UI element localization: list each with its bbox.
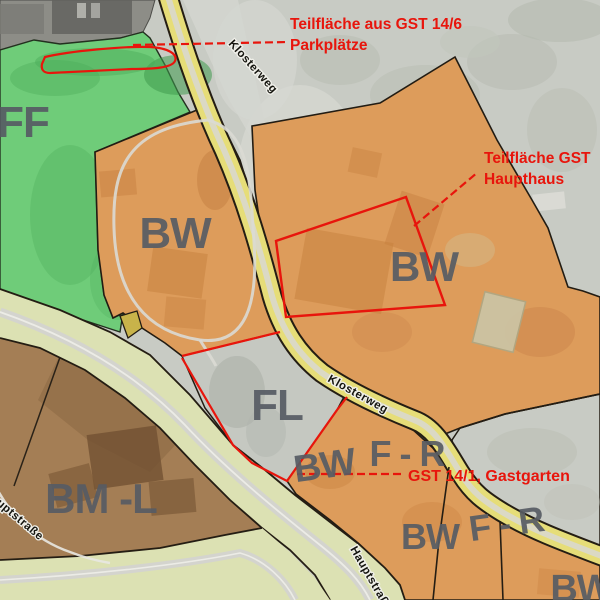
zone-label-bml: BM -L: [45, 475, 157, 522]
annotation-parkplaetze-line1: Teilfläche aus GST 14/6: [290, 16, 462, 33]
zone-label-ff: FF: [0, 98, 49, 147]
annotation-haupthaus-line2: Haupthaus: [484, 171, 564, 188]
annotation-gastgarten: GST 14/1, Gastgarten: [408, 468, 570, 485]
parked-car: [91, 3, 100, 18]
parked-car: [77, 3, 86, 18]
zoning-map-canvas[interactable]: Klosterweg Klosterweg Hauptstraße Haupts…: [0, 0, 600, 600]
main-building-roof: [294, 228, 393, 314]
zone-label-bw-west: BW: [139, 209, 212, 258]
zone-label-bw-east: BW: [390, 243, 459, 290]
annotation-parkplaetze-line2: Parkplätze: [290, 37, 368, 54]
zone-label-bw-corner: BW: [550, 568, 600, 600]
zoning-map-svg: Klosterweg Klosterweg Hauptstraße Haupts…: [0, 0, 600, 600]
building-roof: [0, 4, 44, 34]
zone-label-bw-gastgarten: BW: [291, 441, 359, 491]
zone-label-bw-lower: BW: [401, 516, 460, 557]
zone-label-fl: FL: [251, 381, 303, 430]
annotation-haupthaus-line1: Teilfläche GST: [484, 150, 591, 167]
